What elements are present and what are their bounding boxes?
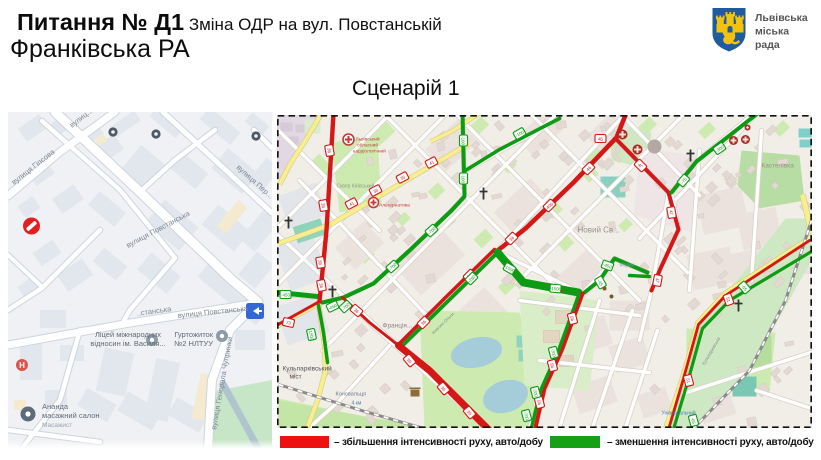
svg-text:кардіологічний: кардіологічний <box>353 148 386 155</box>
svg-text:Кульпарківський: Кульпарківський <box>283 365 333 373</box>
svg-text:рада: рада <box>755 39 780 51</box>
svg-text:Ліцей міжнародних: Ліцей міжнародних <box>95 330 161 339</box>
svg-text:H: H <box>19 361 25 370</box>
svg-text:міст: міст <box>290 373 302 381</box>
svg-text:Масажист: Масажист <box>42 422 72 429</box>
svg-text:-1500: -1500 <box>550 286 562 292</box>
svg-text:3Б: 3Б <box>320 202 326 208</box>
svg-text:міська: міська <box>755 26 789 38</box>
svg-text:Франція...: Франція... <box>383 322 413 330</box>
svg-text:Львівська: Львівська <box>755 12 808 24</box>
svg-text:-100: -100 <box>461 174 466 183</box>
svg-text:Сквер Київський: Сквер Київський <box>337 183 375 190</box>
svg-text:Новий Св...: Новий Св... <box>578 226 620 235</box>
svg-text:4 км: 4 км <box>352 401 362 407</box>
svg-text:№2 НЛТУУ: №2 НЛТУУ <box>174 339 213 348</box>
svg-text:обласний: обласний <box>357 142 378 149</box>
svg-text:Медик: Медик <box>620 263 636 269</box>
svg-text:3Б: 3Б <box>326 147 332 153</box>
svg-text:Коновальця: Коновальця <box>336 392 367 398</box>
svg-text:-450: -450 <box>281 292 290 297</box>
svg-text:-100: -100 <box>461 136 466 145</box>
svg-text:Львівський: Львівський <box>355 136 379 143</box>
svg-text:Універсальний: Універсальний <box>662 410 696 417</box>
svg-text:3Б: 3Б <box>317 259 323 265</box>
svg-text:Альтернатива: Альтернатива <box>379 203 410 209</box>
svg-text:відносин ім. Василя...: відносин ім. Василя... <box>90 339 165 348</box>
svg-text:Ананда: Ананда <box>42 402 69 411</box>
svg-text:Гуртожиток: Гуртожиток <box>174 330 213 339</box>
svg-text:Кастелівка: Кастелівка <box>762 162 795 170</box>
svg-text:4Б: 4Б <box>598 136 603 141</box>
svg-text:масажний салон: масажний салон <box>42 411 100 420</box>
